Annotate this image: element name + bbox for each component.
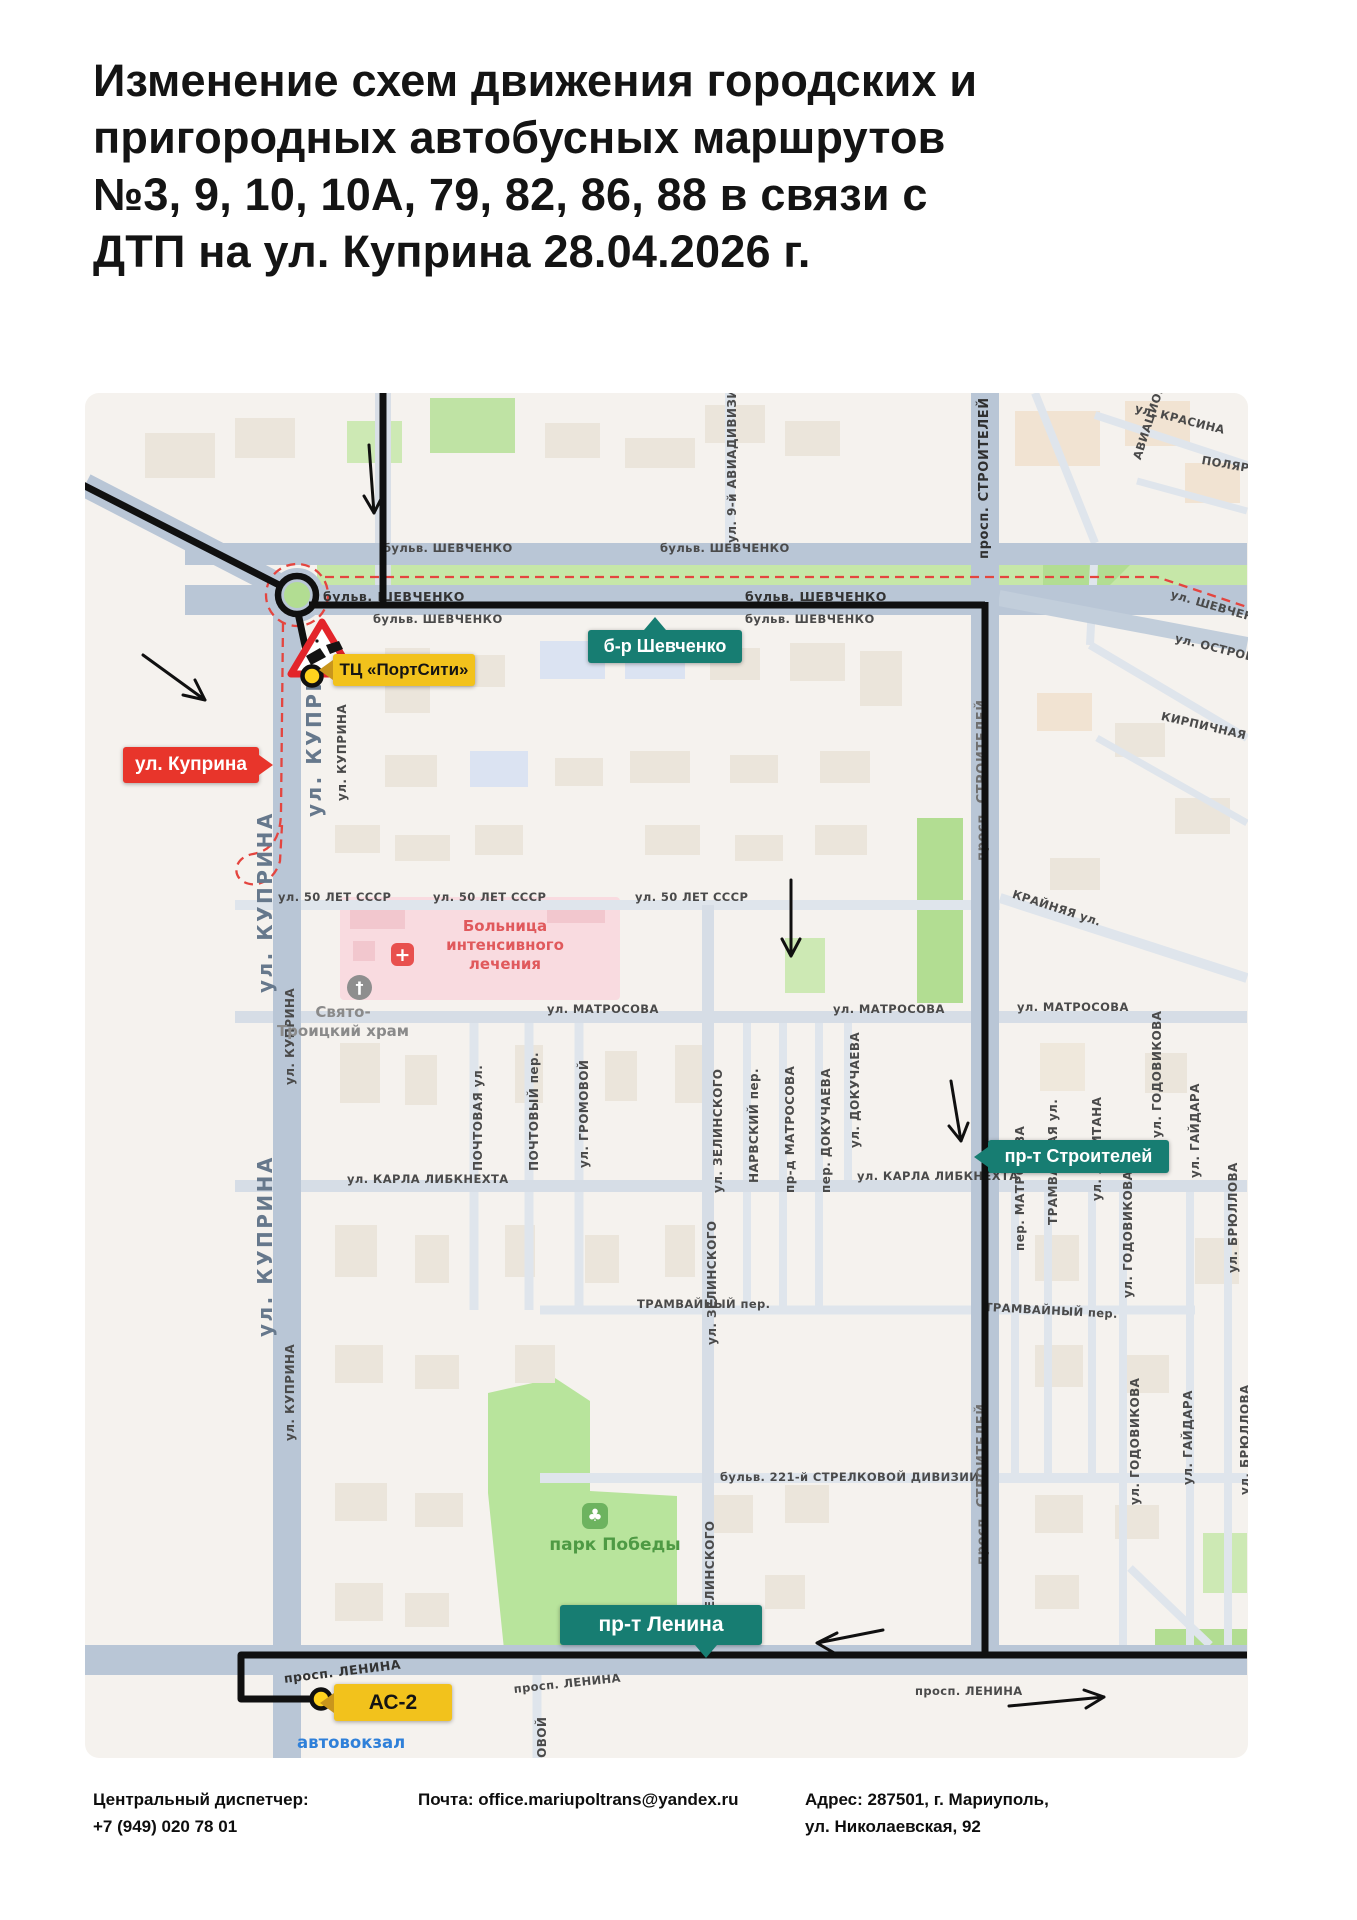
address-line-1: Адрес: 287501, г. Мариуполь, (805, 1786, 1049, 1813)
callout-arrow-up-icon (644, 617, 666, 630)
route-overlay-svg (85, 393, 1248, 1758)
callout-as2: АС-2 (334, 1684, 452, 1721)
callout-stroiteley-label: пр-т Строителей (1005, 1146, 1153, 1167)
callout-portcity-label: ТЦ «ПортСити» (339, 660, 468, 680)
callout-kuprina: ул. Куприна (123, 747, 259, 783)
callout-kuprina-label: ул. Куприна (135, 754, 247, 776)
callout-as2-label: АС-2 (369, 1691, 417, 1715)
callout-portcity: ТЦ «ПортСити» (333, 654, 475, 686)
title-line-4: ДТП на ул. Куприна 28.04.2026 г. (93, 223, 1103, 280)
title-line-1: Изменение схем движения городских и (93, 52, 1103, 109)
dispatcher-phone: +7 (949) 020 78 01 (93, 1813, 309, 1840)
email-text: Почта: office.mariupoltrans@yandex.ru (418, 1786, 739, 1813)
callout-arrow-left-icon (974, 1147, 988, 1167)
callout-shevchenko-label: б-р Шевченко (604, 636, 727, 657)
page-title: Изменение схем движения городских и приг… (93, 52, 1103, 280)
callout-lenina-label: пр-т Ленина (599, 1613, 724, 1637)
callout-stroiteley: пр-т Строителей (988, 1140, 1169, 1173)
callout-arrow-left-icon (320, 1693, 334, 1713)
callout-lenina: пр-т Ленина (560, 1605, 762, 1645)
route-map: бульв. ШЕВЧЕНКОбульв. ШЕВЧЕНКОбульв. ШЕВ… (85, 393, 1248, 1758)
callout-arrow-down-icon (695, 1645, 717, 1658)
dispatcher-label: Центральный диспетчер: (93, 1786, 309, 1813)
callout-shevchenko: б-р Шевченко (588, 630, 742, 663)
footer-dispatcher: Центральный диспетчер: +7 (949) 020 78 0… (93, 1786, 309, 1840)
route-line (85, 393, 1247, 1699)
title-line-3: №3, 9, 10, 10А, 79, 82, 86, 88 в связи с (93, 166, 1103, 223)
poster: { "title": { "lines": [ "Изменение схем … (0, 0, 1357, 1920)
callout-arrow-left-icon (319, 660, 333, 680)
callout-arrow-right-icon (259, 755, 273, 775)
footer-email: Почта: office.mariupoltrans@yandex.ru (418, 1786, 739, 1813)
address-line-2: ул. Николаевская, 92 (805, 1813, 1049, 1840)
title-line-2: пригородных автобусных маршрутов (93, 109, 1103, 166)
footer-address: Адрес: 287501, г. Мариуполь, ул. Николае… (805, 1786, 1049, 1840)
